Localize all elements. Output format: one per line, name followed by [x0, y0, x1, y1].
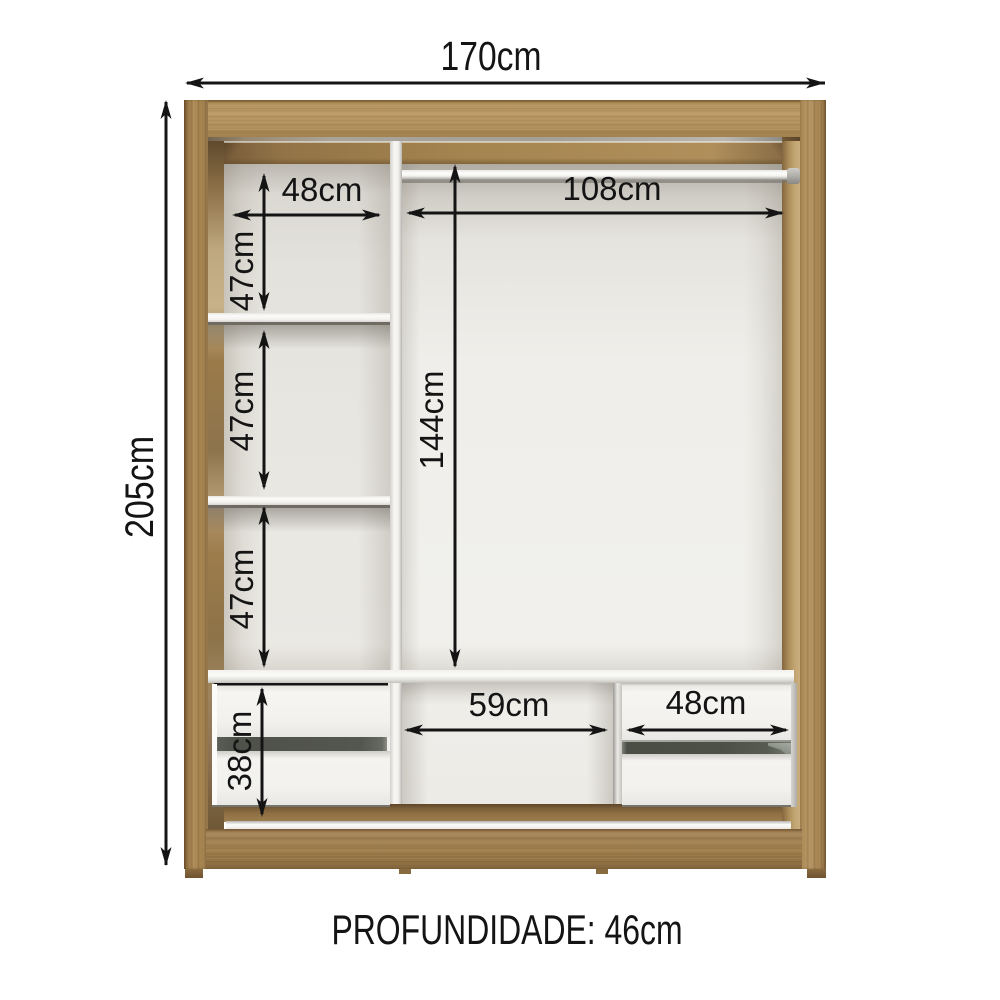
- svg-text:108cm: 108cm: [562, 170, 661, 207]
- svg-text:47cm: 47cm: [223, 371, 260, 452]
- svg-text:47cm: 47cm: [223, 231, 260, 312]
- svg-text:170cm: 170cm: [441, 33, 542, 79]
- svg-text:47cm: 47cm: [223, 549, 260, 630]
- svg-text:144cm: 144cm: [413, 370, 450, 469]
- svg-text:205cm: 205cm: [116, 436, 161, 538]
- svg-text:48cm: 48cm: [666, 684, 747, 721]
- svg-text:59cm: 59cm: [469, 686, 550, 723]
- svg-text:48cm: 48cm: [282, 171, 363, 208]
- svg-text:PROFUNDIDADE: 46cm: PROFUNDIDADE: 46cm: [331, 906, 682, 953]
- svg-text:38cm: 38cm: [221, 711, 258, 792]
